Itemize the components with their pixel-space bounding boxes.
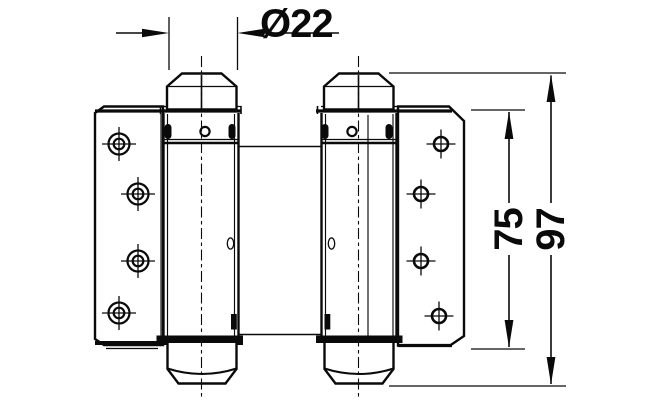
arrow-down-icon: [547, 357, 556, 385]
dimension-plate-height: 75: [471, 110, 531, 349]
barrel-slot: [227, 238, 233, 249]
arrow-down-icon: [505, 320, 514, 348]
left-spring-barrel: [157, 74, 244, 384]
technical-drawing-canvas: Ø22 75 97: [0, 0, 660, 400]
barrel-latch-block: [325, 314, 331, 330]
barrel-slot: [328, 238, 334, 249]
right-spring-barrel: [316, 74, 403, 384]
right-plate-outline: [398, 107, 464, 346]
connecting-web: [240, 147, 323, 335]
arrow-up-icon: [505, 112, 514, 140]
plate-height-label: 75: [487, 208, 531, 251]
diameter-label: Ø22: [260, 2, 333, 46]
bottom-flange: [316, 336, 403, 344]
bottom-flange: [157, 336, 244, 344]
hinge-technical-drawing: Ø22 75 97: [0, 0, 660, 400]
arrow-right-icon: [142, 29, 169, 37]
barrel-latch-block: [231, 314, 237, 330]
barrel-pin-hole: [347, 127, 356, 136]
arrow-up-icon: [547, 75, 556, 103]
barrel-pin-right: [386, 124, 393, 139]
overall-height-label: 97: [529, 208, 573, 251]
dimension-diameter: Ø22: [116, 2, 339, 70]
